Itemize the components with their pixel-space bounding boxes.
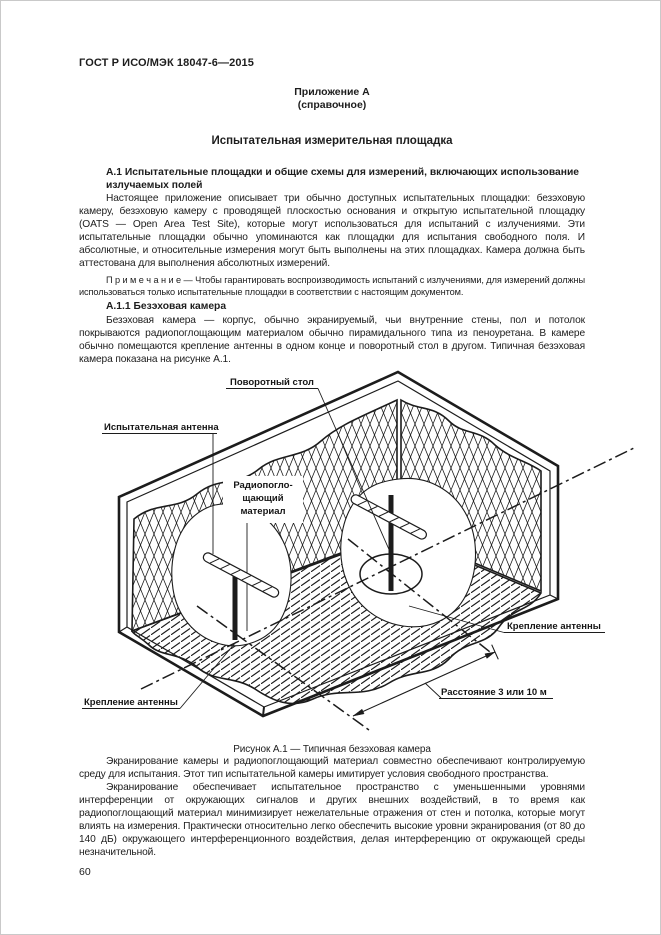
label-absorber-material: Радиопогло- щающий материал bbox=[223, 476, 303, 523]
label-distance: Расстояние 3 или 10 м bbox=[439, 687, 553, 699]
heading-a11: А.1.1 Безэховая камера bbox=[79, 300, 585, 313]
figure-caption: Рисунок А.1 — Типичная безэховая камера bbox=[79, 744, 585, 755]
page-number: 60 bbox=[79, 866, 585, 878]
figure-a1: Поворотный стол Испытательная антенна Ра… bbox=[1, 369, 660, 731]
closing-paragraph-1: Экранирование камеры и радиопоглощающий … bbox=[79, 755, 585, 781]
document-header: ГОСТ Р ИСО/МЭК 18047-6—2015 bbox=[79, 1, 585, 69]
svg-text:материал: материал bbox=[240, 506, 285, 517]
closing-paragraph-2: Экранирование обеспечивает испытательное… bbox=[79, 781, 585, 859]
page-content-top: ГОСТ Р ИСО/МЭК 18047-6—2015 Приложение А… bbox=[1, 1, 660, 366]
svg-text:Испытательная антенна: Испытательная антенна bbox=[104, 422, 219, 433]
svg-text:щающий: щающий bbox=[242, 493, 283, 504]
svg-text:Расстояние 3 или 10 м: Расстояние 3 или 10 м bbox=[441, 687, 547, 698]
annex-title: Испытательная измерительная площадка bbox=[79, 135, 585, 147]
heading-a1: А.1 Испытательные площадки и общие схемы… bbox=[79, 166, 585, 192]
annex-label: Приложение А bbox=[79, 86, 585, 99]
anechoic-chamber-diagram: Поворотный стол Испытательная антенна Ра… bbox=[1, 369, 661, 731]
annex-type: (справочное) bbox=[79, 99, 585, 112]
svg-text:Радиопогло-: Радиопогло- bbox=[233, 480, 292, 491]
svg-text:Поворотный стол: Поворотный стол bbox=[230, 377, 314, 388]
svg-text:Крепление антенны: Крепление антенны bbox=[84, 697, 178, 708]
document-page: ГОСТ Р ИСО/МЭК 18047-6—2015 Приложение А… bbox=[0, 0, 661, 935]
page-content-bottom: Рисунок А.1 — Типичная безэховая камера … bbox=[1, 744, 660, 878]
note-a1: П р и м е ч а н и е — Чтобы гарантироват… bbox=[79, 274, 585, 298]
paragraph-a11: Безэховая камера — корпус, обычно экрани… bbox=[79, 314, 585, 366]
paragraph-a1: Настоящее приложение описывает три обычн… bbox=[79, 192, 585, 270]
svg-text:Крепление антенны: Крепление антенны bbox=[507, 621, 601, 632]
